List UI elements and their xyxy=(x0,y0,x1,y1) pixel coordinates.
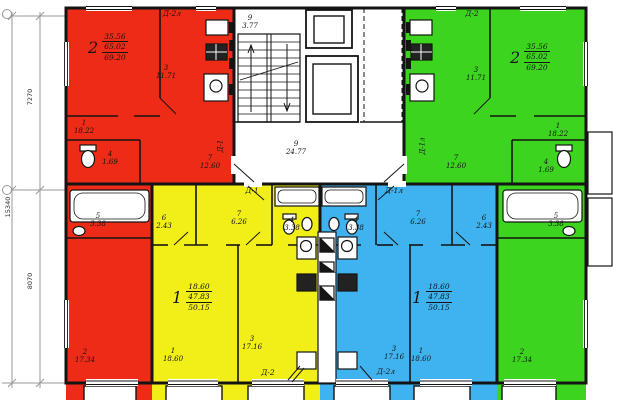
red-door-entry-label: Д-1 xyxy=(216,140,224,153)
stairs-label: 93.77 xyxy=(242,14,258,30)
elevator-shafts xyxy=(306,10,358,122)
blue-room-6: 62.43 xyxy=(476,214,492,230)
red-apartment-label: 2 35.5665.0269.20 xyxy=(88,32,128,62)
blue-room-4: 43.38 xyxy=(348,216,364,232)
blue-door-entry-label: Д-1л xyxy=(385,186,403,195)
yellow-room-7: 76.26 xyxy=(231,210,247,226)
red-room-4: 41.69 xyxy=(102,150,118,166)
floor-plan-scene: 15340 7270 8070 93.77 924.77 2 35.5665.0… xyxy=(0,0,640,400)
red-room-5: 53.38 xyxy=(90,212,106,228)
green-room-4: 41.69 xyxy=(538,158,554,174)
vent-shaft-center xyxy=(318,232,336,383)
stairs xyxy=(238,34,300,122)
red-room-2: 217.34 xyxy=(75,348,95,364)
green-room-2: 217.34 xyxy=(512,348,532,364)
dim-upper: 7270 xyxy=(26,80,34,114)
red-room-1: 118.22 xyxy=(74,119,94,135)
red-room-7: 712.60 xyxy=(200,154,220,170)
green-room-5: 53.38 xyxy=(548,212,564,228)
blue-apartment-label: 1 18.6047.8350.15 xyxy=(412,282,452,312)
vent-blocks xyxy=(229,22,411,95)
green-apartment-label: 2 35.5665.0269.20 xyxy=(510,42,550,72)
yellow-room-1: 118.60 xyxy=(163,347,183,363)
green-room-7: 712.60 xyxy=(446,154,466,170)
blue-room-3: 317.16 xyxy=(384,345,404,361)
yellow-door-entry-label: Д-1 xyxy=(245,186,258,195)
dim-overall: 15340 xyxy=(4,190,12,224)
yellow-room-4: 43.38 xyxy=(284,216,300,232)
right-loggia xyxy=(588,132,612,266)
yellow-room-3: 317.16 xyxy=(242,335,262,351)
dim-lower: 8070 xyxy=(26,264,34,298)
yellow-room-6: 62.43 xyxy=(156,214,172,230)
red-room-3: 311.71 xyxy=(156,64,176,80)
yellow-door-bottom-label: Д-2 xyxy=(261,368,274,377)
blue-room-7: 76.26 xyxy=(410,210,426,226)
green-room-1: 118.22 xyxy=(548,122,568,138)
hall-label: 924.77 xyxy=(286,140,306,156)
green-door-top-label: Д-2 xyxy=(465,9,478,18)
blue-door-bottom-label: Д-2л xyxy=(377,367,395,376)
service-shaft xyxy=(364,8,402,122)
green-room-3: 311.71 xyxy=(466,66,486,82)
yellow-apartment-label: 1 18.6047.8350.15 xyxy=(172,282,212,312)
green-door-entry-label: Д-1л xyxy=(418,138,426,155)
red-door-top-label: Д-2л xyxy=(163,9,181,18)
blue-room-1: 118.60 xyxy=(411,347,431,363)
